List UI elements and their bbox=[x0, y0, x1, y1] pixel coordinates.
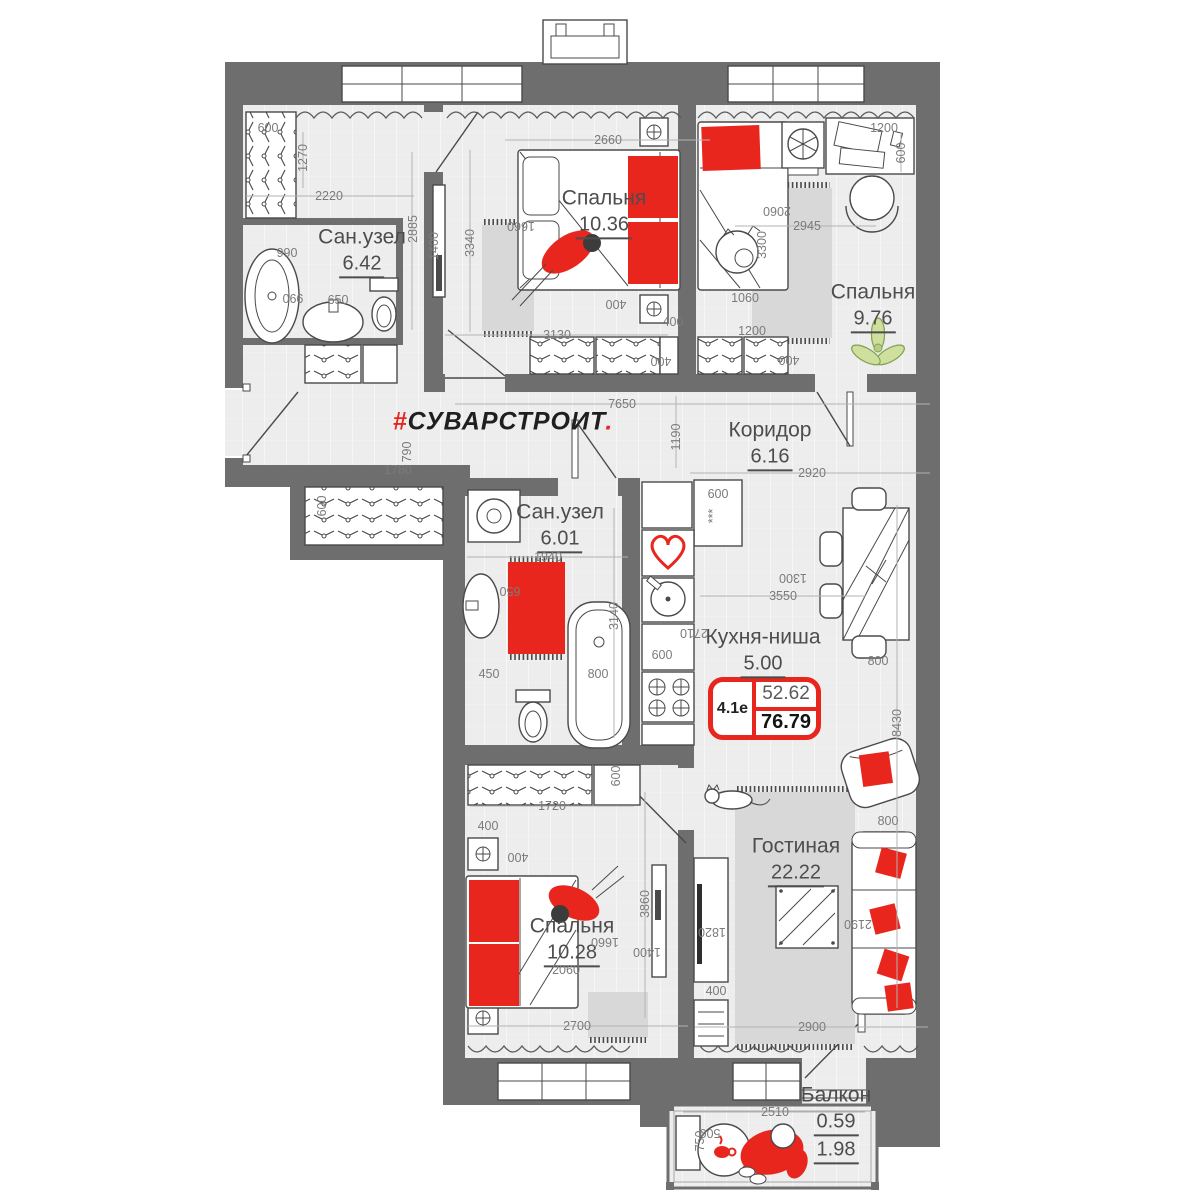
room-name: Спальня bbox=[562, 184, 646, 211]
dimension-label: 1270 bbox=[296, 144, 310, 172]
dimension-label: 2060 bbox=[552, 963, 580, 977]
dimension-label: 3860 bbox=[638, 890, 652, 918]
dimension-label: 600 bbox=[315, 496, 329, 517]
room-name: Спальня bbox=[831, 278, 915, 305]
room-area: 6.16 bbox=[748, 444, 793, 472]
dimension-label: 1940 bbox=[534, 550, 562, 564]
dimension-label: 990 bbox=[277, 246, 298, 260]
brand-name: СУВАРСТРОИТ bbox=[408, 408, 606, 436]
dimension-label: 400 bbox=[478, 819, 499, 833]
dimension-label: 800 bbox=[878, 814, 899, 828]
room-name: Гостиная bbox=[752, 832, 840, 859]
dimension-label: 650 bbox=[500, 584, 521, 598]
dimension-label: 790 bbox=[400, 442, 414, 463]
room-area: 5.00 bbox=[741, 651, 786, 679]
dimension-label: 990 bbox=[283, 291, 304, 305]
dimension-label: 400 bbox=[779, 353, 800, 367]
dimension-label: 3550 bbox=[769, 589, 797, 603]
dimension-label: 400 bbox=[508, 850, 529, 864]
dimension-label: 1200 bbox=[870, 121, 898, 135]
dimension-label: 650 bbox=[328, 293, 349, 307]
room-label-balcony: Балкон0.591.98 bbox=[801, 1081, 871, 1164]
room-label-bedroom-2: Спальня9.76 bbox=[831, 278, 915, 333]
dimension-label: 2190 bbox=[844, 917, 872, 931]
dimension-label: 600 bbox=[894, 143, 908, 164]
dimension-label: 1660 bbox=[507, 219, 535, 233]
room-label-bedroom-1: Спальня10.36 bbox=[562, 184, 646, 239]
living-area-value: 52.62 bbox=[756, 682, 816, 711]
room-name: Кухня-ниша bbox=[705, 623, 820, 650]
dimension-label: 1060 bbox=[731, 291, 759, 305]
dimension-label: 450 bbox=[479, 667, 500, 681]
room-label-living-room: Гостиная22.22 bbox=[752, 832, 840, 887]
dimension-label: 400 bbox=[663, 315, 684, 329]
total-area-value: 76.79 bbox=[756, 711, 816, 736]
dimension-label: 1400 bbox=[427, 232, 441, 260]
dimension-label: 1400 bbox=[633, 945, 661, 959]
flat-type: 4.1е bbox=[713, 682, 756, 735]
dimension-label: 1190 bbox=[669, 424, 683, 451]
room-area-total: 1.98 bbox=[814, 1137, 859, 1165]
flat-areas: 52.62 76.79 bbox=[756, 682, 816, 735]
dimension-label: 2700 bbox=[563, 1019, 591, 1033]
dimension-label: 1660 bbox=[591, 935, 619, 949]
dimension-label: 1720 bbox=[538, 799, 566, 813]
developer-logo: #СУВАРСТРОИТ. bbox=[393, 408, 614, 437]
dimension-label: 2660 bbox=[594, 133, 622, 147]
room-area: 9.76 bbox=[851, 306, 896, 334]
dimension-label: 2220 bbox=[315, 189, 343, 203]
brand-hash: # bbox=[393, 408, 408, 436]
room-area: 10.36 bbox=[576, 212, 632, 240]
room-name: Сан.узел bbox=[318, 223, 406, 250]
dimension-label: 2885 bbox=[406, 215, 420, 243]
dimension-label: 600 bbox=[609, 766, 623, 787]
dimension-label: 3300 bbox=[755, 231, 769, 259]
dimension-label: 8430 bbox=[890, 709, 904, 737]
dimension-label: 7650 bbox=[608, 397, 636, 411]
room-label-bathroom-1: Сан.узел6.42 bbox=[318, 223, 406, 278]
dimension-label: 1780 bbox=[384, 463, 412, 477]
dimension-label: *** bbox=[706, 509, 720, 524]
room-name: Коридор bbox=[729, 416, 812, 443]
dimension-label: 1200 bbox=[738, 324, 766, 338]
room-label-bathroom-2: Сан.узел6.01 bbox=[516, 498, 604, 553]
dimension-label: 600 bbox=[258, 121, 279, 135]
dimension-label: 3340 bbox=[463, 229, 477, 257]
dimension-label: 1820 bbox=[698, 925, 726, 939]
dimension-label: 400 bbox=[706, 984, 727, 998]
dimension-label: 400 bbox=[606, 297, 627, 311]
dimension-label: 500 bbox=[700, 1126, 721, 1140]
dimension-label: 2710 bbox=[680, 626, 708, 640]
dimension-label: 3140 bbox=[607, 602, 621, 630]
room-name: Сан.узел bbox=[516, 498, 604, 525]
dimension-label: 3130 bbox=[543, 328, 571, 342]
room-area: 6.42 bbox=[340, 251, 385, 279]
labels-layer: #СУВАРСТРОИТ. 4.1е 52.62 76.79 Спальня10… bbox=[0, 0, 1200, 1200]
flat-info-badge: 4.1е 52.62 76.79 bbox=[708, 677, 821, 740]
room-area: 22.22 bbox=[768, 860, 824, 888]
floor-plan-canvas: #СУВАРСТРОИТ. 4.1е 52.62 76.79 Спальня10… bbox=[0, 0, 1200, 1200]
dimension-label: 800 bbox=[588, 667, 609, 681]
brand-dot: . bbox=[605, 408, 613, 436]
room-name: Балкон bbox=[801, 1081, 871, 1108]
dimension-label: 800 bbox=[868, 654, 889, 668]
dimension-label: 2945 bbox=[793, 219, 821, 233]
room-label-kitchen-niche: Кухня-ниша5.00 bbox=[705, 623, 820, 678]
room-area: 0.59 bbox=[814, 1109, 859, 1137]
room-label-corridor: Коридор6.16 bbox=[729, 416, 812, 471]
dimension-label: 600 bbox=[652, 648, 673, 662]
dimension-label: 2060 bbox=[763, 204, 791, 218]
dimension-label: 2510 bbox=[761, 1105, 789, 1119]
dimension-label: 1300 bbox=[779, 571, 807, 585]
dimension-label: 600 bbox=[708, 487, 729, 501]
dimension-label: 2900 bbox=[798, 1020, 826, 1034]
dimension-label: 2920 bbox=[798, 466, 826, 480]
dimension-label: 400 bbox=[651, 354, 672, 368]
